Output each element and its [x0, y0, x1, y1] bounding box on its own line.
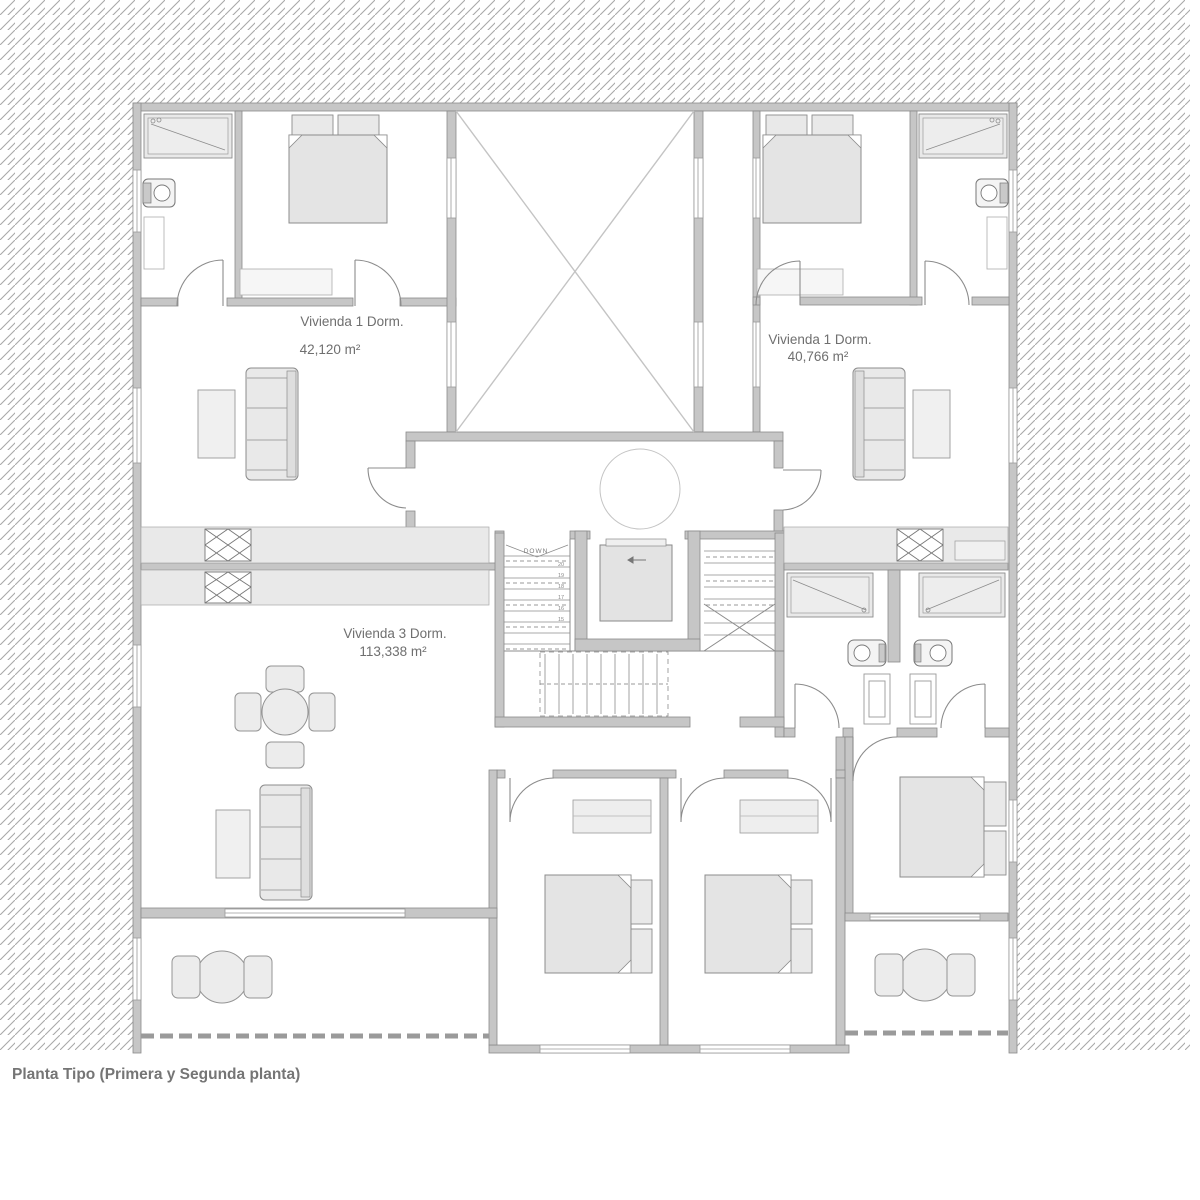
chair-icon — [244, 956, 272, 998]
svg-text:16: 16 — [558, 606, 564, 612]
elevator-car — [600, 545, 672, 621]
bed-top-left — [289, 115, 387, 223]
apartment-1-area: 42,120 m² — [300, 342, 361, 357]
svg-text:20: 20 — [558, 562, 564, 568]
bench-icon — [240, 269, 332, 295]
bed-top-right — [763, 115, 861, 223]
svg-text:19: 19 — [558, 573, 564, 579]
bed-icon — [545, 875, 631, 973]
toilet-icon — [143, 179, 175, 207]
elevator-door — [606, 539, 666, 546]
toilet-icon — [848, 640, 886, 666]
side-table-icon — [216, 810, 250, 878]
svg-text:17: 17 — [558, 595, 564, 601]
side-table-icon — [198, 390, 235, 458]
apartment-3-name: Vivienda 3 Dorm. — [343, 626, 446, 641]
floor-plan-drawing: Vivienda 1 Dorm. 42,120 m² Vivienda 1 Do… — [0, 0, 1200, 1200]
shower-icon — [919, 114, 1007, 158]
round-table-icon — [196, 951, 248, 1003]
sink-icon — [205, 572, 251, 603]
shower-icon — [787, 573, 873, 617]
toilet-icon — [914, 640, 952, 666]
shower-icon — [919, 573, 1005, 617]
sofa-left — [246, 368, 298, 480]
chair-icon — [947, 954, 975, 996]
bed-icon — [705, 875, 791, 973]
apartment-3-area: 113,338 m² — [359, 644, 427, 659]
shower-icon — [144, 114, 232, 158]
side-table-icon — [913, 390, 950, 458]
sheet-caption: Planta Tipo (Primera y Segunda planta) — [12, 1066, 300, 1083]
sofa-right — [853, 368, 905, 480]
toilet-icon — [976, 179, 1008, 207]
apartment-2-area: 40,766 m² — [788, 349, 849, 364]
svg-text:15: 15 — [558, 617, 564, 623]
floor-plan-sheet: Vivienda 1 Dorm. 42,120 m² Vivienda 1 Do… — [0, 0, 1200, 1200]
sofa-v3 — [260, 785, 312, 900]
round-table-icon — [899, 949, 951, 1001]
sink-icon — [205, 529, 251, 561]
bed-icon — [900, 777, 984, 877]
chair-icon — [875, 954, 903, 996]
stair-down-label: DOWN — [524, 548, 549, 555]
chair-icon — [172, 956, 200, 998]
svg-text:18: 18 — [558, 584, 564, 590]
sink-icon — [897, 529, 943, 561]
apartment-2-name: Vivienda 1 Dorm. — [768, 332, 871, 347]
apartment-1-name: Vivienda 1 Dorm. — [300, 314, 403, 329]
